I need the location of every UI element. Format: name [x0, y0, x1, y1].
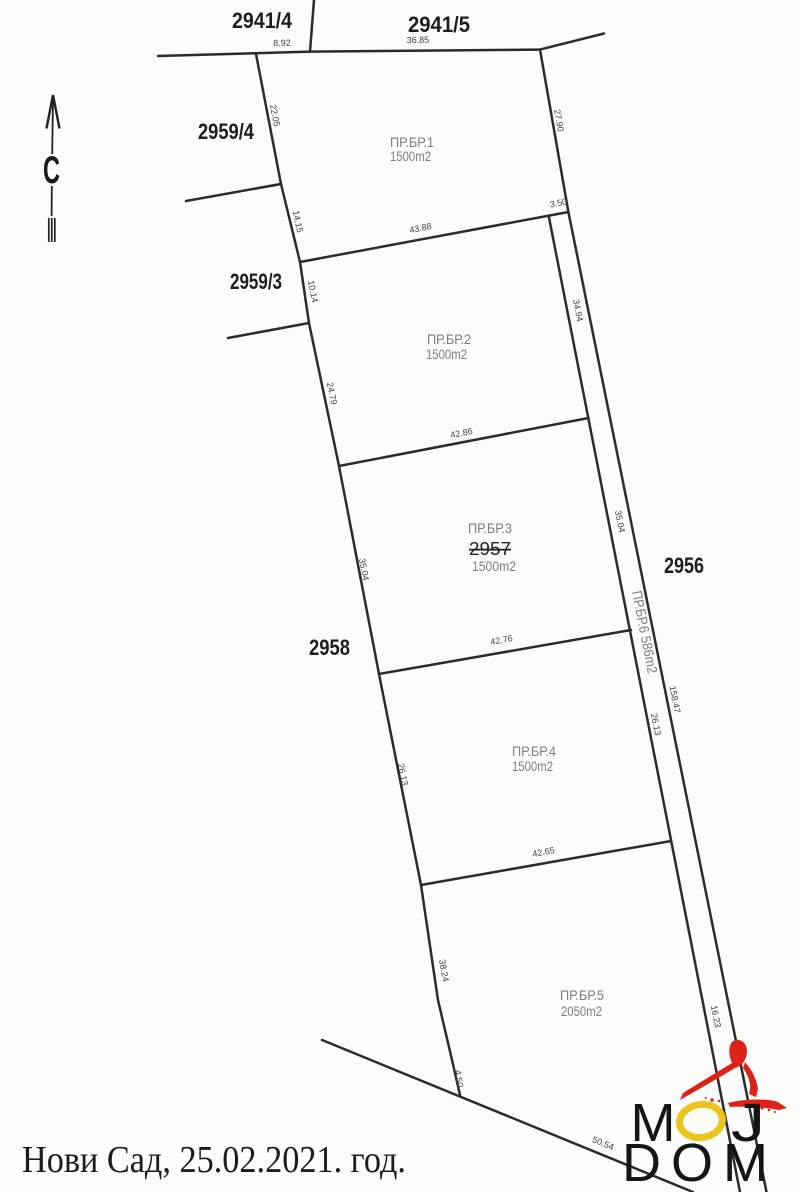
svg-text:С: С	[43, 149, 60, 192]
svg-text:ПР.БР.3: ПР.БР.3	[468, 520, 512, 536]
svg-text:2958: 2958	[309, 635, 350, 660]
svg-text:24.79: 24.79	[325, 381, 339, 405]
svg-text:1500m2: 1500m2	[472, 558, 516, 574]
svg-text:26.13: 26.13	[396, 762, 410, 786]
svg-text:ПР.БР.4: ПР.БР.4	[512, 743, 556, 759]
svg-text:ПР.БР.6 586m2: ПР.БР.6 586m2	[629, 589, 661, 675]
svg-text:2050m2: 2050m2	[561, 1003, 602, 1019]
svg-text:2941/4: 2941/4	[232, 8, 293, 33]
svg-text:DOM: DOM	[622, 1133, 778, 1192]
svg-text:50.54: 50.54	[591, 1134, 616, 1152]
svg-text:2941/5: 2941/5	[408, 12, 470, 37]
svg-text:Нови Сад, 25.02.2021. год.: Нови Сад, 25.02.2021. год.	[22, 1139, 406, 1181]
svg-text:43.88: 43.88	[408, 221, 432, 235]
svg-text:10.14: 10.14	[306, 279, 320, 303]
svg-text:1500m2: 1500m2	[426, 346, 467, 362]
svg-text:2959/3: 2959/3	[230, 269, 282, 294]
svg-text:34.94: 34.94	[571, 298, 585, 322]
svg-text:ПР.БР.5: ПР.БР.5	[560, 987, 604, 1003]
svg-text:8.92: 8.92	[273, 38, 291, 48]
svg-text:2957: 2957	[469, 539, 511, 559]
svg-text:2956: 2956	[664, 553, 704, 578]
svg-text:42.65: 42.65	[532, 845, 556, 859]
svg-text:36.85: 36.85	[407, 35, 430, 46]
svg-text:38.24: 38.24	[437, 959, 451, 983]
svg-text:1500m2: 1500m2	[390, 148, 431, 164]
svg-text:16.23: 16.23	[709, 1004, 723, 1028]
svg-text:42.76: 42.76	[490, 633, 514, 647]
svg-text:35.04: 35.04	[613, 509, 627, 533]
svg-text:3.50: 3.50	[549, 196, 568, 209]
svg-text:42.86: 42.86	[449, 426, 473, 440]
svg-text:1500m2: 1500m2	[512, 758, 553, 774]
svg-text:35.04: 35.04	[357, 557, 371, 581]
svg-text:ПР.БР.2: ПР.БР.2	[427, 331, 471, 347]
svg-text:4.50: 4.50	[453, 1069, 466, 1088]
svg-text:2959/4: 2959/4	[198, 119, 255, 144]
